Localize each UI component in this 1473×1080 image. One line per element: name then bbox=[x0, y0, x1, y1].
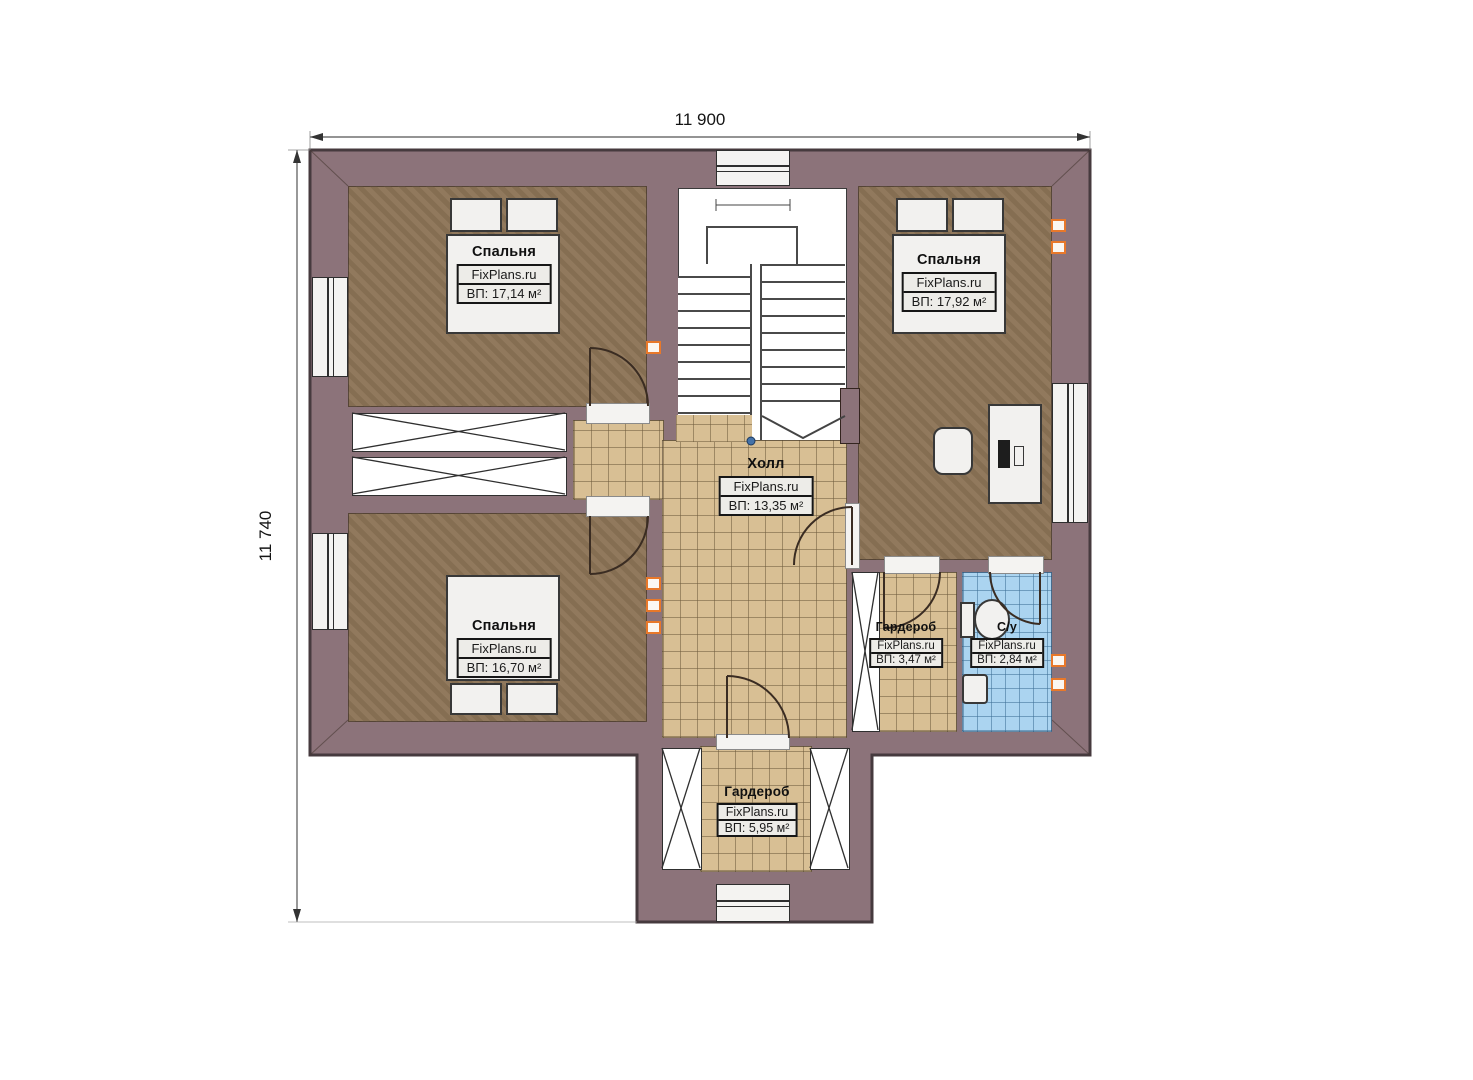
vent-marker bbox=[1051, 654, 1066, 667]
brand-text: FixPlans.ru bbox=[972, 640, 1042, 654]
label-box: FixPlans.ru ВП: 5,95 м² bbox=[717, 803, 798, 837]
window-left-lower bbox=[312, 533, 348, 630]
brand-text: FixPlans.ru bbox=[904, 274, 995, 293]
room-label-bedroom-tr: Спальня FixPlans.ru ВП: 17,92 м² bbox=[902, 252, 997, 312]
room-name: Спальня bbox=[472, 618, 536, 634]
vent-marker bbox=[1051, 219, 1066, 232]
stair-landing-rail bbox=[706, 226, 798, 264]
vent-marker bbox=[646, 599, 661, 612]
area-text: ВП: 16,70 м² bbox=[459, 659, 550, 676]
window-right bbox=[1052, 383, 1088, 523]
area-text: ВП: 2,84 м² bbox=[972, 654, 1042, 666]
brand-text: FixPlans.ru bbox=[871, 640, 941, 654]
pillow-icon bbox=[450, 198, 502, 232]
label-box: FixPlans.ru ВП: 17,14 м² bbox=[457, 264, 552, 304]
pillow-icon bbox=[952, 198, 1004, 232]
room-label-wardrobe-bottom: Гардероб FixPlans.ru ВП: 5,95 м² bbox=[717, 784, 798, 837]
vent-marker bbox=[646, 341, 661, 354]
vent-marker bbox=[1051, 241, 1066, 254]
area-text: ВП: 13,35 м² bbox=[721, 497, 812, 514]
room-label-hall: Холл FixPlans.ru ВП: 13,35 м² bbox=[719, 456, 814, 516]
brand-text: FixPlans.ru bbox=[459, 266, 550, 285]
keyboard-icon bbox=[1014, 446, 1024, 466]
room-name: Спальня bbox=[472, 244, 536, 260]
wall-stub bbox=[840, 388, 860, 444]
label-box: FixPlans.ru ВП: 17,92 м² bbox=[902, 272, 997, 312]
brand-text: FixPlans.ru bbox=[459, 640, 550, 659]
room-name: Гардероб bbox=[876, 620, 937, 634]
area-text: ВП: 3,47 м² bbox=[871, 654, 941, 666]
pillow-icon bbox=[506, 198, 558, 232]
closet-strip-upper bbox=[352, 413, 567, 452]
label-box: FixPlans.ru ВП: 16,70 м² bbox=[457, 638, 552, 678]
area-text: ВП: 17,92 м² bbox=[904, 293, 995, 310]
door-opening-bathroom bbox=[988, 556, 1044, 574]
closet-wardrobe-bottom-left bbox=[662, 748, 702, 870]
door-opening-bedroom-tl bbox=[586, 403, 650, 424]
label-box: FixPlans.ru ВП: 3,47 м² bbox=[869, 638, 943, 668]
area-text: ВП: 5,95 м² bbox=[719, 821, 796, 835]
stair-base-tile bbox=[676, 415, 752, 442]
room-name: С/у bbox=[997, 620, 1017, 634]
left-dimension-label: 11 740 bbox=[256, 511, 276, 562]
vent-marker bbox=[646, 577, 661, 590]
door-opening-bedroom-tr bbox=[845, 503, 860, 569]
pillow-icon bbox=[450, 683, 502, 715]
vestibule-floor bbox=[573, 420, 664, 500]
brand-text: FixPlans.ru bbox=[721, 478, 812, 497]
door-opening-wardrobe-bottom bbox=[716, 734, 790, 750]
floor-plan-canvas: Спальня FixPlans.ru ВП: 17,14 м² Спальня… bbox=[0, 0, 1473, 1080]
room-label-bedroom-bl: Спальня FixPlans.ru ВП: 16,70 м² bbox=[457, 618, 552, 678]
top-dimension-label: 11 900 bbox=[675, 110, 726, 130]
closet-strip-lower bbox=[352, 457, 567, 496]
area-text: ВП: 17,14 м² bbox=[459, 285, 550, 302]
stair-flight-left bbox=[678, 276, 752, 415]
room-name: Холл bbox=[747, 456, 784, 472]
chair-icon bbox=[933, 427, 973, 475]
pillow-icon bbox=[506, 683, 558, 715]
room-label-wardrobe-right: Гардероб FixPlans.ru ВП: 3,47 м² bbox=[869, 620, 943, 668]
closet-wardrobe-bottom-right bbox=[810, 748, 850, 870]
vent-marker bbox=[646, 621, 661, 634]
monitor-icon bbox=[998, 440, 1010, 468]
door-opening-wardrobe-right bbox=[884, 556, 940, 574]
window-bottom bbox=[716, 884, 790, 922]
brand-text: FixPlans.ru bbox=[719, 805, 796, 821]
room-label-bathroom: С/у FixPlans.ru ВП: 2,84 м² bbox=[970, 620, 1044, 668]
window-top bbox=[716, 150, 790, 186]
room-name: Спальня bbox=[917, 252, 981, 268]
room-label-bedroom-tl: Спальня FixPlans.ru ВП: 17,14 м² bbox=[457, 244, 552, 304]
room-name: Гардероб bbox=[724, 784, 789, 799]
door-opening-bedroom-bl bbox=[586, 496, 650, 517]
label-box: FixPlans.ru ВП: 13,35 м² bbox=[719, 476, 814, 516]
pillow-icon bbox=[896, 198, 948, 232]
label-box: FixPlans.ru ВП: 2,84 м² bbox=[970, 638, 1044, 668]
stair-flight-right bbox=[762, 264, 845, 416]
vent-marker bbox=[1051, 678, 1066, 691]
window-left-upper bbox=[312, 277, 348, 377]
sink-icon bbox=[962, 674, 988, 704]
